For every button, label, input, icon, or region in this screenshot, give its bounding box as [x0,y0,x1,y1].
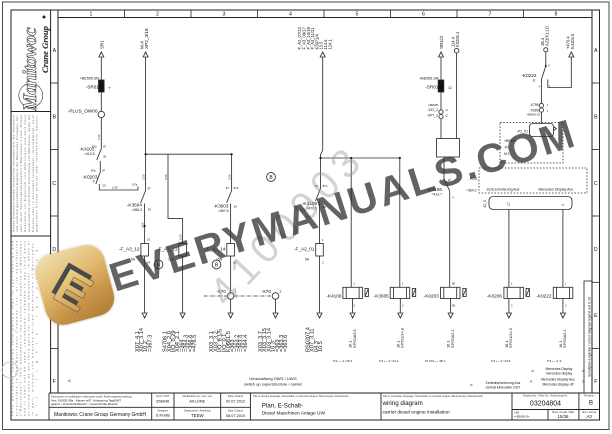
svg-text:-P2: -P2 [504,146,509,150]
svg-text:15: 15 [448,178,452,182]
svg-text:-IO_0: -IO_0 [483,200,487,208]
svg-text:C: C [594,181,598,187]
svg-text:>: > [582,379,585,384]
svg-text:-SR01: -SR01 [86,85,100,90]
svg-text:=367.6: =367.6 [218,209,229,213]
svg-text:1: 1 [354,282,356,286]
svg-text:07 07a ⌐– 38.1: 07 07a ⌐– 38.1 [425,359,445,363]
svg-text:=413.7: =413.7 [432,193,443,197]
svg-text:87: 87 [102,169,106,173]
svg-text:856046: 856046 [156,399,169,404]
svg-text:A: A [594,48,598,54]
svg-text:1.50: 1.50 [112,186,118,190]
svg-text:1.50: 1.50 [97,134,101,140]
svg-text:-SR01: -SR01 [425,85,439,90]
svg-text:2: 2 [156,12,159,18]
svg-text:A23/X1:1D: A23/X1:1D [544,26,549,46]
svg-text:=413.5: =413.5 [84,152,95,156]
svg-text:B: B [269,175,273,181]
svg-text:-K3604: -K3604 [127,203,143,208]
svg-text:30: 30 [148,208,152,212]
svg-text:3: 3 [452,196,454,200]
svg-text:-X70: -X70 [216,289,226,294]
svg-text:K0206.1: K0206.1 [455,31,460,47]
svg-text:t2: t2 [446,114,449,118]
svg-text:-F_A3_14: -F_A3_14 [205,247,226,252]
svg-text:-K0203: -K0203 [82,175,98,180]
svg-text:87a: 87a [91,169,96,173]
svg-text:5A: 5A [131,258,136,262]
svg-text:30: 30 [323,205,327,209]
svg-text:-PO0: -PO0 [469,177,477,181]
svg-text:+BE505: +BE505 [428,103,438,107]
svg-text:Schaltplan-Legende / circuit d: Schaltplan-Legende / circuit diagram leg… [588,297,592,377]
svg-text:Date / Datum: Date / Datum [228,408,243,412]
svg-text:D: D [594,247,598,253]
svg-text:1: 1 [547,103,549,107]
svg-text:30: 30 [103,155,107,159]
svg-text:5 9 ⌐– 3 \ 25.3: 5 9 ⌐– 3 \ 25.3 [333,359,353,363]
svg-text:2.50: 2.50 [140,222,144,228]
svg-text:87a: 87a [133,183,138,187]
svg-text:12: 12 [448,86,452,90]
svg-text:3: 3 [548,64,550,68]
svg-text:6: 6 [422,12,425,18]
svg-text:02.07.2012: 02.07.2012 [226,399,245,404]
svg-text:5 9 ⌐– 3 \ 24.2: 5 9 ⌐– 3 \ 24.2 [379,359,399,363]
svg-text:5A: 5A [305,258,310,262]
svg-text:5 9 ⌐– 3 .9: 5 9 ⌐– 3 .9 [547,359,562,363]
svg-text:87a: 87a [323,184,328,188]
svg-text:15/36: 15/36 [558,414,570,419]
svg-text:B: B [594,115,598,121]
svg-text:A: A [53,48,57,54]
svg-text:-X70: -X70 [261,289,271,294]
svg-text:carrier diesel engine installa: carrier diesel engine installation [383,410,451,416]
svg-text:-K0222: -K0222 [521,73,537,78]
svg-text:1: 1 [322,238,324,242]
svg-text:03204804: 03204804 [530,400,561,407]
svg-text:-F_A3_13: -F_A3_13 [157,247,178,252]
svg-text:-K4103: -K4103 [79,147,95,152]
svg-text:Manitowoc Crane Group Germany: Manitowoc Crane Group Germany GmbH [54,412,146,418]
svg-text:K4104.5: K4104.5 [570,33,575,49]
svg-text:7: 7 [489,12,492,18]
svg-text:30: 30 [102,184,106,188]
svg-text:B: B [589,401,593,407]
svg-text:+: + [108,86,111,91]
svg-text:8: 8 [555,12,558,18]
svg-text:AKLÖNE: AKLÖNE [189,399,205,404]
svg-text:Title in secondary language /: Title in secondary language / Descriptio… [383,395,484,398]
svg-text:SP/D1/14.8: SP/D1/14.8 [400,328,405,348]
svg-text:2.50: 2.50 [178,234,182,240]
svg-text:Title in primary language / De: Title in primary language / Description … [253,395,349,398]
svg-text:Plan, E-Schalt-: Plan, E-Schalt- [262,402,303,409]
svg-text:Zent.schmierung Aus: Zent.schmierung Aus [487,188,520,192]
svg-text:switch up superstructure / car: switch up superstructure / carrier [244,382,303,387]
svg-text:=364.4: =364.4 [243,335,249,352]
svg-text:-K3605: -K3605 [374,294,390,299]
svg-text:>: > [582,369,585,374]
svg-text:-F_A3_12: -F_A3_12 [119,247,140,252]
svg-text:B: B [215,262,219,268]
svg-text:B: B [157,262,161,268]
svg-text:<: < [68,379,71,385]
svg-text:2: 2 [511,304,513,308]
svg-text:=366.3: =366.3 [132,208,143,212]
svg-text:Mercedes Display Aus: Mercedes Display Aus [541,378,575,382]
svg-text:08.07.2010: 08.07.2010 [226,413,246,418]
svg-text:SP/S162.2: SP/S162.2 [450,329,455,348]
svg-text:geänd. / Zusschrift-Beschr. /: geänd. / Zusschrift-Beschr. / Querschrit… [51,402,119,406]
svg-text:-X799: -X799 [529,103,538,107]
svg-text:-K4106: -K4106 [427,187,443,192]
svg-text:15A: 15A [168,258,175,262]
svg-text:-F_A2_01: -F_A2_01 [294,247,315,252]
svg-text:TEEW: TEEW [191,413,205,418]
svg-text:Diesel Maschinen Anlage UW: Diesel Maschinen Anlage UW [262,411,326,417]
svg-text:SP/S163.2: SP/S163.2 [562,329,567,348]
svg-text:Mercedes Display: Mercedes Display [546,367,573,371]
svg-text:Manitowoc: Manitowoc [20,27,41,112]
svg-text:87: 87 [148,187,152,191]
svg-text:87a: 87a [234,186,239,190]
svg-text:124.1: 124.1 [327,39,332,50]
svg-text:5 9 ⌐– 3 \ 24.6: 5 9 ⌐– 3 \ 24.6 [491,359,511,363]
svg-text:F: F [594,379,597,385]
svg-text:<: < [530,379,533,384]
svg-text:87: 87 [226,186,230,190]
svg-text:=367.3: =367.3 [147,335,153,352]
svg-text:2.50: 2.50 [141,174,145,180]
svg-text:=363.6: =363.6 [283,335,289,352]
svg-text:M.1: M.1 [504,152,510,156]
svg-text:2: 2 [565,304,567,308]
svg-text:.8: .8 [532,79,535,83]
svg-text:mercedes display: mercedes display [546,372,573,376]
svg-text:t2: t2 [446,108,449,112]
svg-text:15A: 15A [216,258,223,262]
svg-text:SR1: SR1 [100,40,105,49]
svg-text:central lubrication OUT: central lubrication OUT [486,386,521,390]
svg-text:S.Krafta: S.Krafta [156,413,171,418]
svg-text:A3: A3 [587,414,593,419]
svg-text:24: 24 [147,261,151,265]
svg-text:1: 1 [565,282,567,286]
svg-text:+BE505.SR: +BE505.SR [80,77,100,81]
svg-text:>: > [470,383,473,388]
svg-text:Department / Abteilung: Department / Abteilung [184,408,211,412]
svg-text:2: 2 [402,304,404,308]
svg-text:XP2_3/18: XP2_3/18 [144,28,149,49]
svg-text:-K3603: -K3603 [213,204,229,209]
svg-text:Crane Group: Crane Group [40,25,50,73]
svg-text:B: B [53,115,57,121]
svg-text:-K0203: -K0203 [424,294,440,299]
svg-text:SP/D1/14.3: SP/D1/14.3 [508,328,513,348]
svg-text:C: C [52,181,56,187]
svg-text:-K4106: -K4106 [326,294,342,299]
svg-text:10.5: 10.5 [318,341,324,352]
svg-text:Umschaltung OWG / UWG: Umschaltung OWG / UWG [249,376,297,381]
svg-text:= BE050-S+: = BE050-S+ [514,415,530,419]
svg-text:wiring diagram: wiring diagram [382,400,423,407]
svg-text:E: E [594,313,598,319]
svg-text:-X37_2: -X37_2 [427,108,438,112]
svg-text:1: 1 [235,290,237,294]
svg-text:2: 2 [322,261,324,265]
svg-text:+BE505: +BE505 [504,139,516,143]
svg-text:<: < [531,369,534,374]
svg-text:=364.2: =364.2 [466,189,477,193]
svg-text:-XP7_2: -XP7_2 [427,114,438,118]
svg-text:+BE050-S2: +BE050-S2 [527,113,541,117]
svg-text:-X399: -X399 [529,109,538,113]
svg-text:1: 1 [547,109,549,113]
svg-text:=476.5: =476.5 [192,335,198,352]
svg-text:-K4109: -K4109 [302,201,318,206]
svg-text:1: 1 [402,282,404,286]
svg-text:SR1/2: SR1/2 [439,36,444,49]
svg-text:Drawing No. / Plan No. / Zeich: Drawing No. / Plan No. / Zeichnungs-Nr. [523,395,568,398]
svg-text:Mercedes Display Aus: Mercedes Display Aus [539,188,574,192]
svg-text:SP/S163.9: SP/S163.9 [352,329,357,348]
svg-text:4: 4 [561,204,565,206]
svg-text:2.50: 2.50 [164,174,168,180]
svg-text:.9: .9 [92,180,95,184]
svg-text:All rights reserved.: All rights reserved. [35,241,39,416]
svg-text:4: 4 [439,178,441,182]
svg-text:4: 4 [289,12,292,18]
svg-text:87: 87 [315,184,319,188]
svg-text:Mercedes display off: Mercedes display off [542,383,573,387]
svg-text:D: D [52,247,56,253]
svg-text:28: 28 [233,261,237,265]
svg-text:17: 17 [507,202,511,206]
svg-text:Revision: Revision [584,395,594,398]
svg-text:E: E [53,313,57,319]
svg-text:-K0222: -K0222 [536,294,552,299]
svg-text:-P2_X1: -P2_X1 [517,130,528,134]
svg-text:gegenüber Dritten benutzt oder: gegenüber Dritten benutzt oder veröffent… [35,115,39,232]
svg-text:+BE505.SR: +BE505.SR [419,77,439,81]
svg-text:=470.5: =470.5 [307,207,318,211]
svg-text:2: 2 [280,290,282,294]
svg-text:2.50: 2.50 [227,174,231,180]
svg-text:Zentralschmierung Aus: Zentralschmierung Aus [486,381,521,385]
svg-text:85: 85 [452,304,456,308]
svg-text:30: 30 [234,205,238,209]
svg-text:-PLUS_OW00: -PLUS_OW00 [68,109,98,114]
svg-text:86: 86 [452,282,456,286]
svg-text:2: 2 [354,304,356,308]
svg-text:23: 23 [147,238,151,242]
svg-text:1: 1 [511,282,513,286]
svg-text:87: 87 [103,145,107,149]
svg-text:4: 4 [538,85,540,89]
svg-text:-K0206: -K0206 [487,294,503,299]
svg-text:F: F [53,379,56,385]
svg-text:3: 3 [223,12,226,18]
svg-text:5: 5 [356,12,359,18]
svg-text:1: 1 [90,12,93,18]
